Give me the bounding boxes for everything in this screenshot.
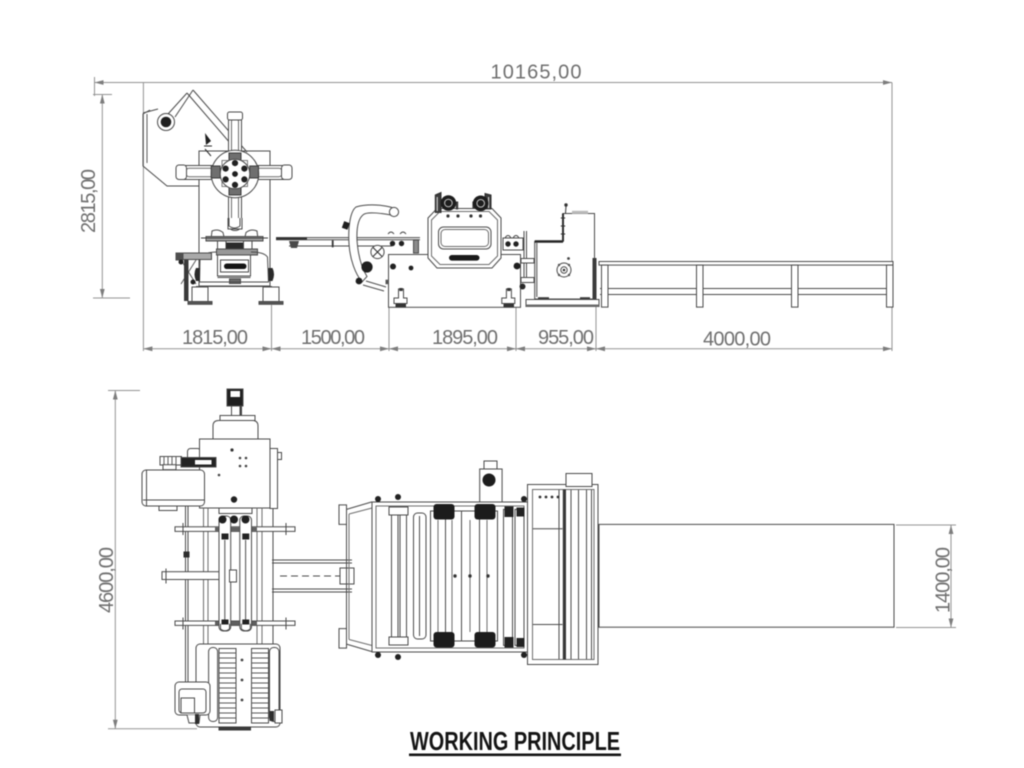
svg-text:2815,00: 2815,00 (78, 169, 100, 233)
svg-text:1500,00: 1500,00 (301, 327, 365, 349)
svg-text:4000,00: 4000,00 (703, 329, 771, 351)
svg-text:4600,00: 4600,00 (96, 547, 118, 613)
svg-text:10165,00: 10165,00 (491, 62, 582, 84)
svg-text:1815,00: 1815,00 (182, 327, 248, 349)
svg-text:955,00: 955,00 (538, 327, 594, 349)
svg-text:1895,00: 1895,00 (432, 327, 498, 349)
svg-text:WORKING PRINCIPLE: WORKING PRINCIPLE (410, 726, 620, 756)
svg-text:1400,00: 1400,00 (933, 547, 955, 613)
